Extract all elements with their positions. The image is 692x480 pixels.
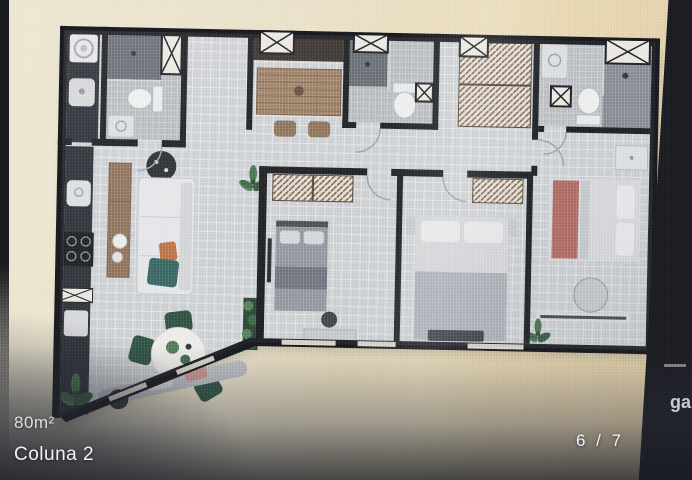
plan-ambient-shade	[56, 30, 656, 430]
floor-plan	[52, 26, 660, 438]
right-edge-partial-text: ga	[670, 392, 691, 413]
area-label: 80m²	[14, 413, 55, 433]
floor-plan-svg	[0, 0, 692, 480]
variant-label: Coluna 2	[14, 444, 94, 466]
listing-photo: 80m² Coluna 2 6 / 7 ga	[0, 0, 692, 480]
floor-plan-image	[0, 0, 692, 480]
right-edge-dash	[664, 364, 686, 367]
pagination-indicator: 6 / 7	[576, 431, 624, 451]
photo-left-black-edge	[0, 0, 9, 480]
